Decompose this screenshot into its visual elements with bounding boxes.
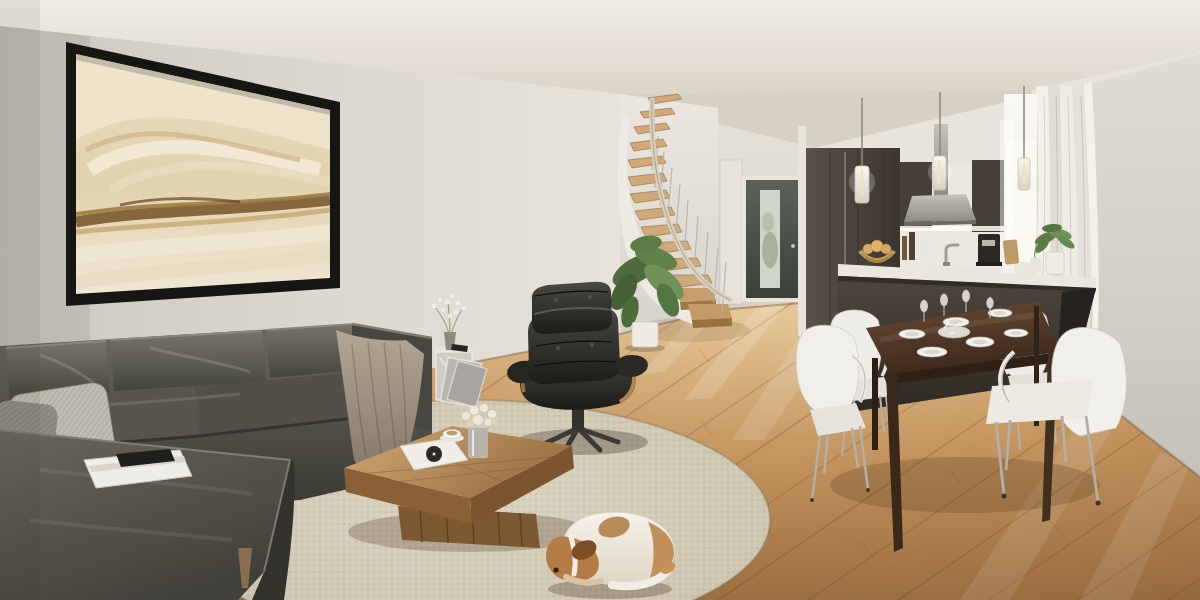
closet-door	[720, 160, 742, 304]
under-cabinet-light	[900, 226, 1012, 231]
door-glass-greenery	[762, 232, 778, 268]
table-leg-back-left	[872, 358, 878, 450]
range-hood	[904, 194, 976, 222]
dining-floor-shadow	[830, 457, 1100, 513]
plant-pot	[632, 322, 658, 347]
edge-vignette	[0, 0, 40, 600]
scene-canvas	[0, 0, 1200, 600]
dog-nose	[553, 567, 558, 572]
door-glass-greenery-2	[762, 212, 774, 232]
jar	[918, 242, 927, 260]
coffee-machine	[976, 234, 1002, 266]
interior-photo	[0, 0, 1200, 600]
bottle-2	[909, 232, 915, 260]
entry	[742, 176, 804, 302]
bottle-1	[902, 236, 907, 260]
door-handle	[791, 244, 795, 248]
cutting-board	[1003, 239, 1019, 264]
kitchen-corner-strip	[798, 126, 806, 336]
